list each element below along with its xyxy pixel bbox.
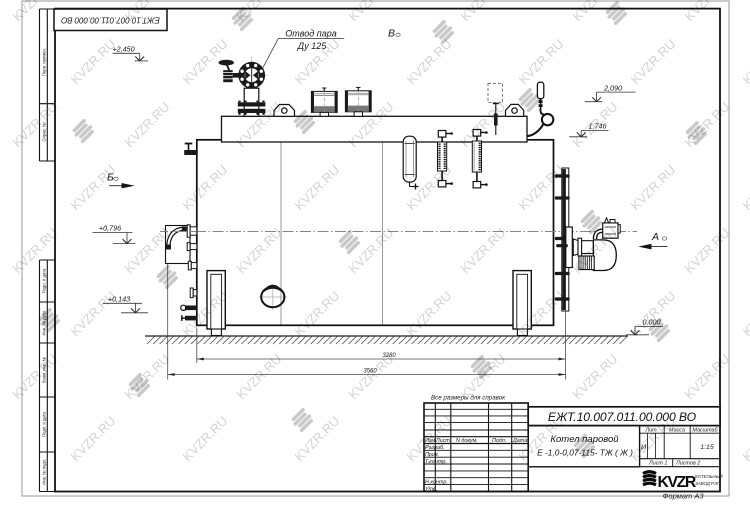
svg-text:ЕЖТ.10.007.011.00.000 ВО: ЕЖТ.10.007.011.00.000 ВО [61,16,160,25]
svg-text:Инв. № подл.: Инв. № подл. [42,459,47,485]
svg-text:2,090: 2,090 [603,83,622,92]
svg-text:Пров.: Пров. [425,452,439,458]
svg-text:КОТЕЛЬНЫЙ: КОТЕЛЬНЫЙ [695,474,723,479]
svg-text:KVZR: KVZR [658,474,697,491]
svg-text:Перв. примен.: Перв. примен. [42,48,47,76]
svg-text:Н.контр.: Н.контр. [425,480,448,486]
svg-text:Подп. и дата: Подп. и дата [42,411,47,436]
svg-text:В: В [388,28,395,40]
svg-text:Формат А3: Формат А3 [662,492,704,500]
svg-text:1:15: 1:15 [700,444,713,451]
svg-text:А: А [651,231,659,243]
svg-text:Утв.: Утв. [424,486,437,492]
svg-text:Листов 2: Листов 2 [675,461,700,467]
svg-text:Отвод пара: Отвод пара [285,28,336,38]
svg-text:Подп.: Подп. [492,438,506,444]
svg-text:Подп. и дата: Подп. и дата [42,268,47,293]
svg-text:Лист 1: Лист 1 [648,461,667,467]
svg-text:ЗАВОД РЭП: ЗАВОД РЭП [695,481,721,486]
svg-text:Масштаб: Масштаб [692,427,718,433]
svg-text:+0,796: +0,796 [99,224,121,233]
svg-text:Т.контр.: Т.контр. [425,459,447,465]
svg-text:N докум.: N докум. [456,438,478,444]
